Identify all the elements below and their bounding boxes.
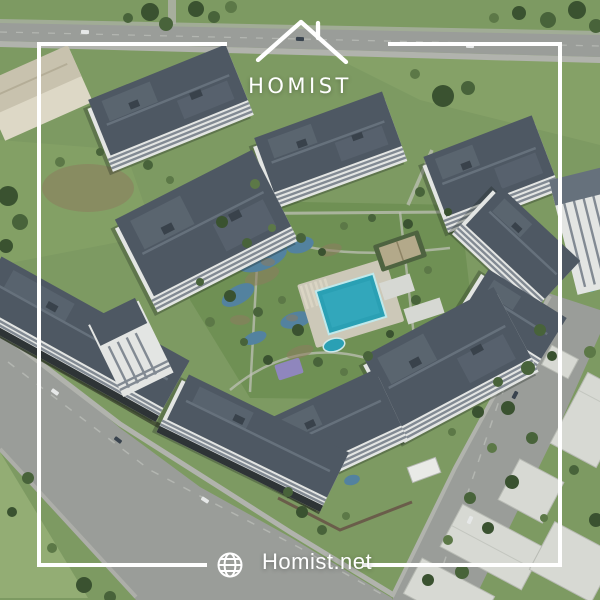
brand-name: HOMIST <box>0 74 600 98</box>
website-url: Homist.net <box>262 549 372 575</box>
globe-icon <box>216 551 244 579</box>
frame-left <box>37 42 41 567</box>
frame-top-right-segment <box>388 42 562 46</box>
promo-image: HOMIST Homist.net <box>0 0 600 600</box>
frame-top-left-segment <box>37 42 227 46</box>
house-roof-icon <box>240 12 360 66</box>
frame-bottom-right-segment <box>362 563 562 567</box>
frame-bottom-left-segment <box>37 563 207 567</box>
frame-right <box>558 42 562 567</box>
